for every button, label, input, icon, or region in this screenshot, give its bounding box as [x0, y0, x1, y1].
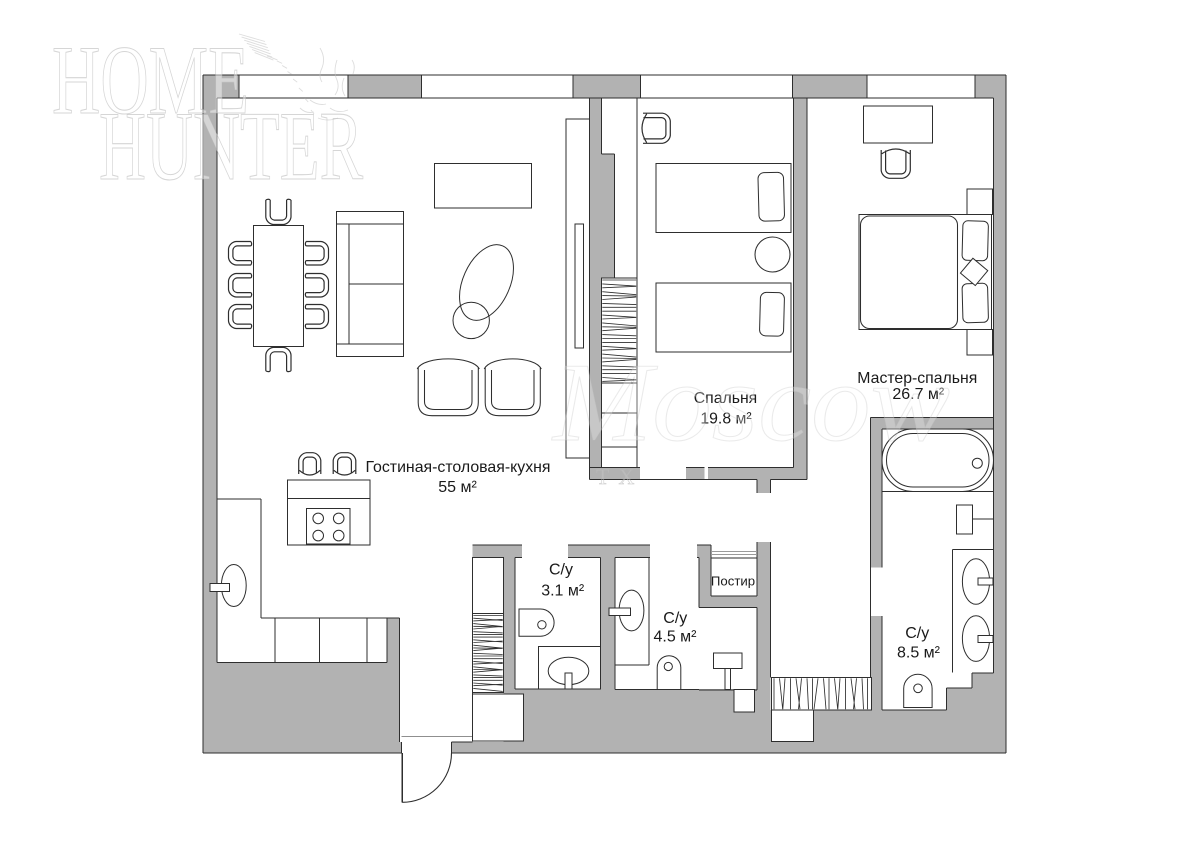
svg-text:8.5 м²: 8.5 м² — [897, 644, 941, 661]
svg-text:Гостиная-столовая-кухня: Гостиная-столовая-кухня — [366, 459, 551, 476]
svg-text:С/у: С/у — [663, 610, 687, 627]
svg-text:С/у: С/у — [549, 561, 573, 578]
svg-text:TX: TX — [596, 464, 643, 489]
svg-text:55 м²: 55 м² — [438, 479, 477, 496]
svg-text:Постир: Постир — [711, 574, 755, 589]
svg-text:3.1 м²: 3.1 м² — [541, 582, 585, 599]
svg-text:4.5 м²: 4.5 м² — [653, 629, 697, 646]
svg-text:Moscow: Moscow — [551, 341, 950, 465]
svg-text:HUNTER: HUNTER — [99, 92, 363, 201]
svg-text:С/у: С/у — [905, 625, 929, 642]
